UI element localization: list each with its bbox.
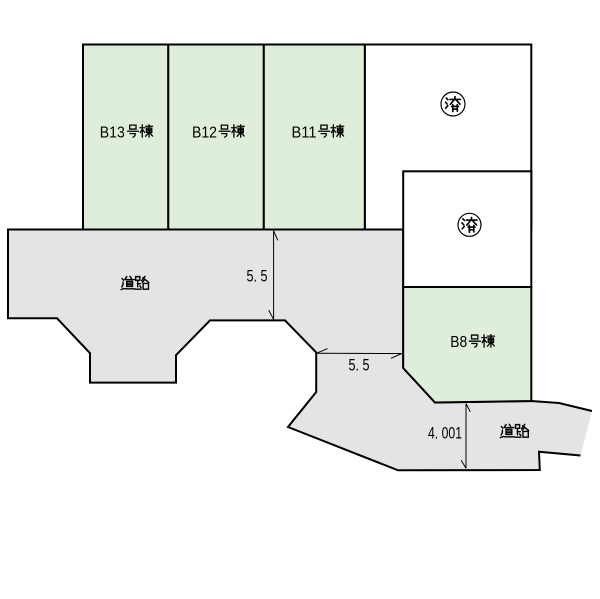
svg-text:5. 5: 5. 5 — [349, 356, 370, 375]
svg-text:B13: B13 — [100, 124, 125, 141]
svg-text:B12: B12 — [192, 124, 217, 141]
svg-text:4. 001: 4. 001 — [428, 424, 462, 443]
svg-text:B11: B11 — [292, 124, 317, 141]
svg-text:B8: B8 — [450, 334, 467, 351]
svg-text:5. 5: 5. 5 — [247, 267, 268, 286]
